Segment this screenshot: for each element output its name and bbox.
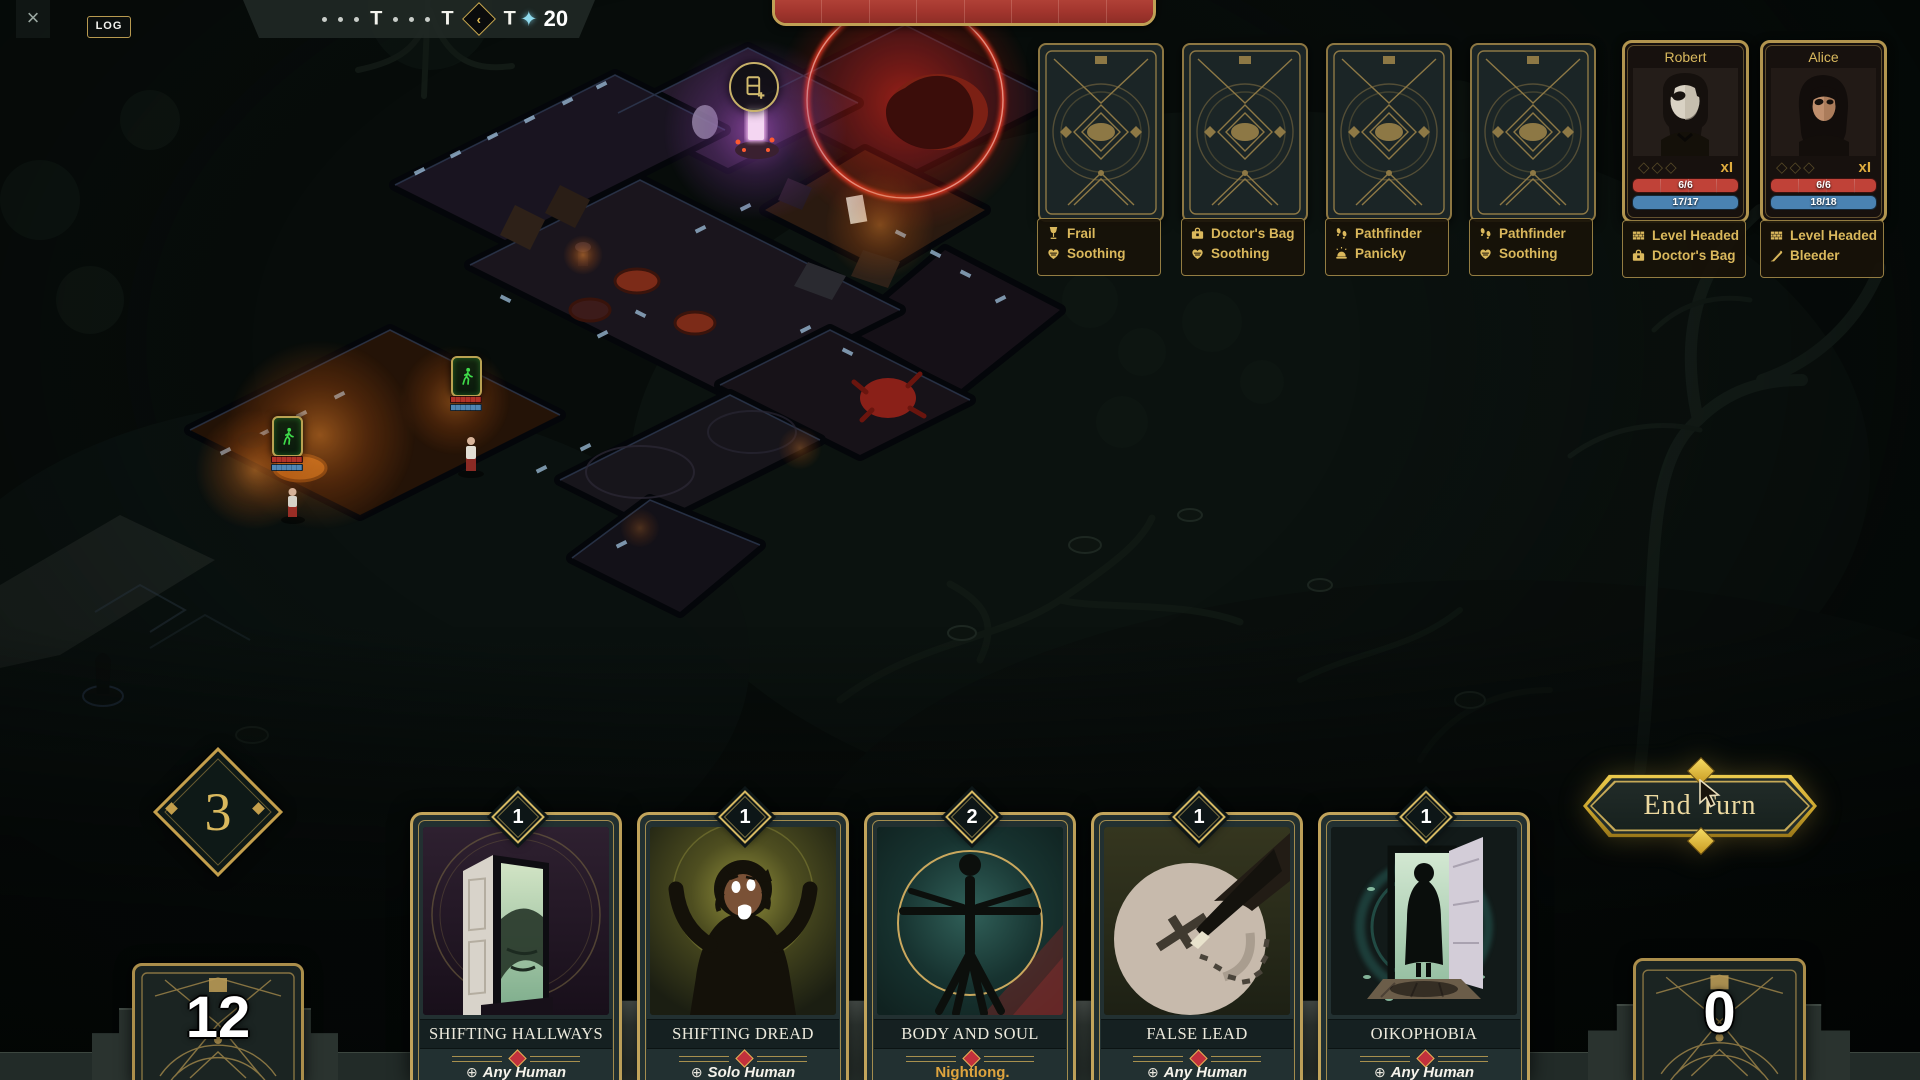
- unit-status-badge-walking[interactable]: [272, 416, 303, 457]
- unit-mini-bars: [450, 396, 482, 411]
- bystander-card[interactable]: [1470, 43, 1596, 222]
- timeline-turn-tick: T: [441, 10, 453, 29]
- card-target: ⊕Any Human: [1094, 1064, 1300, 1080]
- soothing-heart-icon: [1478, 246, 1493, 261]
- supply-value: 20: [544, 6, 568, 32]
- timeline-turn-tick: T: [370, 10, 382, 29]
- hp-value: 6/6: [1633, 179, 1738, 192]
- draw-pile-count: 12: [135, 984, 301, 1051]
- trait-label: Frail: [1067, 226, 1096, 241]
- timeline-turn-tick: T: [504, 10, 516, 29]
- chevron-left-icon: ‹: [476, 13, 480, 26]
- unit-mini-bars: [271, 456, 303, 471]
- hp-value: 6/6: [1771, 179, 1876, 192]
- character-portrait: [1770, 68, 1877, 156]
- card-back-art: [1328, 45, 1450, 220]
- footprints-icon: [1478, 226, 1493, 241]
- character-traits: Level Headed Doctor's Bag: [1622, 220, 1746, 278]
- card-title: SHIFTING DREAD: [647, 1019, 839, 1049]
- action-pips: ◇◇◇: [1638, 158, 1679, 176]
- sanity-value: 17/17: [1633, 196, 1738, 209]
- round-value: 3: [175, 769, 261, 855]
- trait-label: Level Headed: [1652, 228, 1739, 243]
- trait-label: Bleeder: [1790, 248, 1840, 263]
- hand-card-oikophobia[interactable]: 1 OIKOPHOBIA ⊕Any Human: [1318, 812, 1530, 1080]
- hand-card-shifting-dread[interactable]: 1 SHIFTING DREAD ⊕Solo Human: [637, 812, 849, 1080]
- bystander-card[interactable]: [1038, 43, 1164, 222]
- brick-wall-icon: [1769, 228, 1784, 243]
- doom-bar: [772, 0, 1156, 26]
- sanity-value: 18/18: [1771, 196, 1876, 209]
- supply-counter: ✦ 20: [520, 2, 568, 36]
- unit-sanity-bar: [450, 404, 482, 411]
- card-art-body-and-soul: [877, 827, 1063, 1015]
- hp-bar: 6/6: [1632, 178, 1739, 193]
- fragile-glass-icon: [1046, 226, 1061, 241]
- card-art-oikophobia: [1331, 827, 1517, 1015]
- target-icon: ⊕: [691, 1064, 703, 1080]
- bystander-traits: Doctor's Bag Soothing: [1181, 218, 1305, 276]
- game-screen: × LOG T T ‹ T ✦ 20 Frail Soothing Doctor…: [0, 0, 1920, 1080]
- unit-hp-bar: [450, 396, 482, 403]
- trait-label: Soothing: [1067, 246, 1125, 261]
- multiplier-label: xI: [1858, 159, 1871, 176]
- discard-pile[interactable]: 0: [1633, 958, 1806, 1080]
- card-target: ⊕Any Human: [1321, 1064, 1527, 1080]
- timeline-dot: [409, 17, 414, 22]
- character-card-alice[interactable]: Alice ◇◇◇ xI 6/6 18/18: [1760, 40, 1887, 223]
- card-title: FALSE LEAD: [1101, 1019, 1293, 1049]
- target-icon: ⊕: [466, 1064, 478, 1080]
- timeline-dot: [425, 17, 430, 22]
- draw-card-door-icon: [741, 74, 767, 100]
- walking-icon: [278, 423, 298, 450]
- timeline-current-marker: ‹: [462, 2, 496, 36]
- end-turn-button[interactable]: End Turn: [1583, 769, 1817, 843]
- draw-card-map-marker[interactable]: [729, 62, 779, 112]
- spark-diamond-icon: ✦: [520, 7, 538, 32]
- card-art-shifting-hallways: [423, 827, 609, 1015]
- target-icon: ⊕: [1147, 1064, 1159, 1080]
- card-back-art: [1184, 45, 1306, 220]
- hand-card-false-lead[interactable]: 1 FALSE LEAD ⊕Any Human: [1091, 812, 1303, 1080]
- timeline-dot: [338, 17, 343, 22]
- walking-icon: [457, 363, 477, 390]
- card-back-art: [1472, 45, 1594, 220]
- trait-label: Panicky: [1355, 246, 1406, 261]
- trait-label: Soothing: [1211, 246, 1269, 261]
- bystander-card[interactable]: [1182, 43, 1308, 222]
- soothing-heart-icon: [1190, 246, 1205, 261]
- card-target: ⊕Any Human: [413, 1064, 619, 1080]
- doctor-bag-icon: [1631, 248, 1646, 263]
- draw-pile[interactable]: 12: [132, 963, 304, 1080]
- alarm-icon: [1334, 246, 1349, 261]
- unit-sanity-bar: [271, 464, 303, 471]
- footprints-icon: [1334, 226, 1349, 241]
- scalpel-icon: [1769, 248, 1784, 263]
- close-icon: ×: [27, 5, 40, 30]
- character-traits: Level Headed Bleeder: [1760, 220, 1884, 278]
- brick-wall-icon: [1631, 228, 1646, 243]
- bystander-traits: Pathfinder Soothing: [1469, 218, 1593, 276]
- card-title: OIKOPHOBIA: [1328, 1019, 1520, 1049]
- hand-card-shifting-hallways[interactable]: 1 SHIFTING HALLWAYS ⊕Any Human: [410, 812, 622, 1080]
- sanity-bar: 18/18: [1770, 195, 1877, 210]
- timeline-dot: [354, 17, 359, 22]
- card-target: Nightlong.: [867, 1064, 1073, 1080]
- action-pips: ◇◇◇: [1776, 158, 1817, 176]
- character-name: Alice: [1766, 46, 1881, 67]
- trait-label: Doctor's Bag: [1211, 226, 1294, 241]
- trait-label: Level Headed: [1790, 228, 1877, 243]
- character-name: Robert: [1628, 46, 1743, 67]
- card-title: BODY AND SOUL: [874, 1019, 1066, 1049]
- card-target: ⊕Solo Human: [640, 1064, 846, 1080]
- card-back-art: [1040, 45, 1162, 220]
- hp-bar: 6/6: [1770, 178, 1877, 193]
- bystander-traits: Frail Soothing: [1037, 218, 1161, 276]
- log-button[interactable]: LOG: [87, 16, 131, 38]
- trait-label: Soothing: [1499, 246, 1557, 261]
- discard-pile-count: 0: [1636, 979, 1803, 1046]
- card-art-shifting-dread: [650, 827, 836, 1015]
- timeline-dot: [393, 17, 398, 22]
- sanity-bar: 17/17: [1632, 195, 1739, 210]
- trait-label: Pathfinder: [1499, 226, 1566, 241]
- character-card-robert[interactable]: Robert ◇◇◇ xI 6/6 17/17: [1622, 40, 1749, 223]
- trait-label: Doctor's Bag: [1652, 248, 1735, 263]
- timeline-dot: [322, 17, 327, 22]
- card-title: SHIFTING HALLWAYS: [420, 1019, 612, 1049]
- doom-bar-fill: [775, 0, 1153, 23]
- soothing-heart-icon: [1046, 246, 1061, 261]
- target-icon: ⊕: [1374, 1064, 1386, 1080]
- bystander-traits: Pathfinder Panicky: [1325, 218, 1449, 276]
- card-art-false-lead: [1104, 827, 1290, 1015]
- multiplier-label: xI: [1720, 159, 1733, 176]
- unit-status-badge-walking[interactable]: [451, 356, 482, 397]
- log-button-label: LOG: [96, 20, 123, 32]
- unit-hp-bar: [271, 456, 303, 463]
- trait-label: Pathfinder: [1355, 226, 1422, 241]
- doctor-bag-icon: [1190, 226, 1205, 241]
- hand-card-body-and-soul[interactable]: 2 BODY AND SOUL Nightlong.: [864, 812, 1076, 1080]
- character-portrait: [1632, 68, 1739, 156]
- close-button[interactable]: ×: [16, 0, 50, 38]
- bystander-card[interactable]: [1326, 43, 1452, 222]
